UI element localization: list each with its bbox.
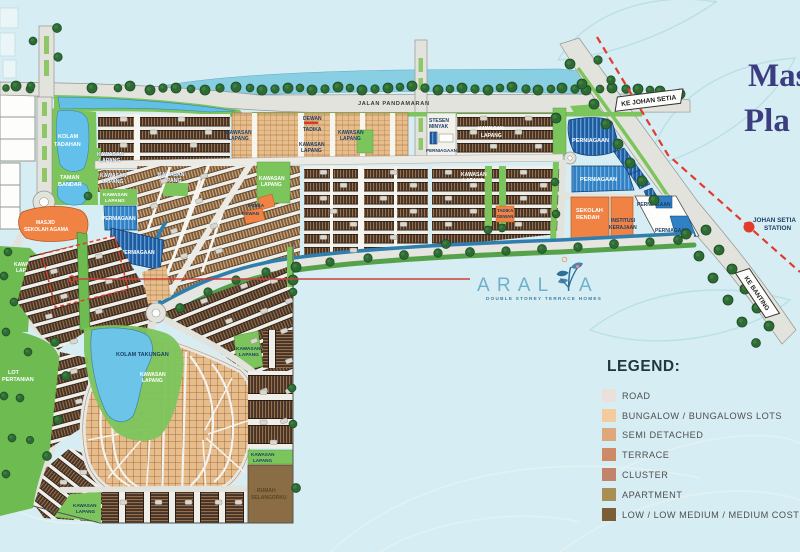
svg-text:KAWASAN: KAWASAN (103, 192, 128, 198)
svg-text:BUNGALOW / BUNGALOWS LOTS: BUNGALOW / BUNGALOWS LOTS (622, 411, 782, 421)
svg-text:LAPANG: LAPANG (261, 182, 282, 188)
svg-text:INSTITUSI: INSTITUSI (611, 218, 636, 224)
svg-text:LAPANG: LAPANG (228, 136, 249, 142)
svg-text:DEWAN: DEWAN (303, 116, 322, 122)
svg-text:PERNIAGAAN: PERNIAGAAN (572, 138, 609, 144)
svg-text:DEWAN: DEWAN (242, 211, 260, 216)
svg-text:LAPANG: LAPANG (102, 179, 124, 185)
svg-text:PERNIAGAAN: PERNIAGAAN (426, 148, 458, 153)
svg-text:LAPANG: LAPANG (99, 158, 121, 164)
svg-text:LEGEND:: LEGEND: (607, 358, 680, 375)
svg-text:TADIKA: TADIKA (497, 208, 514, 213)
svg-text:LAPANG: LAPANG (142, 378, 163, 384)
svg-text:CLUSTER: CLUSTER (622, 470, 668, 480)
svg-text:RENDAH: RENDAH (576, 215, 600, 221)
svg-text:PERNIAGAAN: PERNIAGAAN (102, 216, 136, 222)
svg-text:KAWASAN: KAWASAN (478, 126, 504, 132)
svg-text:A: A (579, 275, 592, 296)
svg-text:APARTMENT: APARTMENT (622, 490, 682, 500)
svg-text:TADAHAN: TADAHAN (54, 142, 81, 148)
svg-text:MINYAK: MINYAK (429, 124, 449, 130)
svg-text:Mas: Mas (748, 58, 800, 94)
svg-text:SELANGORKU: SELANGORKU (251, 495, 287, 501)
svg-text:LOW / LOW MEDIUM / MEDIUM COST: LOW / LOW MEDIUM / MEDIUM COST (622, 510, 799, 520)
svg-text:JALAN PANDAMARAN: JALAN PANDAMARAN (358, 101, 430, 107)
svg-text:SEMI DETACHED: SEMI DETACHED (622, 430, 703, 440)
svg-text:KAWASAN: KAWASAN (73, 503, 97, 508)
svg-text:PERTANIAN: PERTANIAN (2, 377, 34, 383)
svg-text:LAPANG: LAPANG (76, 509, 95, 514)
svg-text:PERNIAGAAN: PERNIAGAAN (580, 177, 617, 183)
svg-text:LAPANG: LAPANG (253, 458, 272, 463)
svg-text:MASJID: MASJID (36, 220, 55, 226)
svg-text:JOHAN SETIA: JOHAN SETIA (753, 217, 796, 224)
svg-text:LOT: LOT (8, 370, 20, 376)
svg-text:ROAD: ROAD (622, 391, 651, 401)
svg-text:PERNIAGAAN: PERNIAGAAN (121, 250, 155, 256)
svg-text:LAPANG: LAPANG (301, 148, 322, 154)
svg-text:LAPANG: LAPANG (105, 198, 125, 204)
svg-text:KERAJAAN: KERAJAAN (609, 225, 637, 231)
svg-text:KAWASAN: KAWASAN (251, 452, 275, 457)
svg-text:TADIKA: TADIKA (303, 127, 322, 133)
svg-text:TADIKA: TADIKA (247, 203, 265, 208)
svg-text:RUMAH: RUMAH (257, 488, 276, 494)
svg-text:TAMAN: TAMAN (60, 175, 79, 181)
svg-text:ARAL: ARAL (477, 275, 555, 296)
svg-text:LAPANG: LAPANG (481, 133, 502, 139)
svg-text:DOUBLE STOREY TERRACE HOMES: DOUBLE STOREY TERRACE HOMES (486, 296, 602, 301)
svg-text:SEKOLAH AGAMA: SEKOLAH AGAMA (24, 227, 69, 233)
svg-text:Pla: Pla (744, 103, 790, 139)
svg-text:KOLAM TAKUNGAN: KOLAM TAKUNGAN (116, 352, 169, 358)
svg-text:BANDAR: BANDAR (58, 182, 82, 188)
svg-text:DEWAN: DEWAN (497, 214, 513, 219)
svg-text:TERRACE: TERRACE (622, 450, 669, 460)
svg-text:LAPANG: LAPANG (340, 136, 361, 142)
svg-text:SEKOLAH: SEKOLAH (576, 208, 603, 214)
svg-text:STATION: STATION (764, 225, 791, 232)
svg-text:KOLAM: KOLAM (58, 134, 79, 140)
